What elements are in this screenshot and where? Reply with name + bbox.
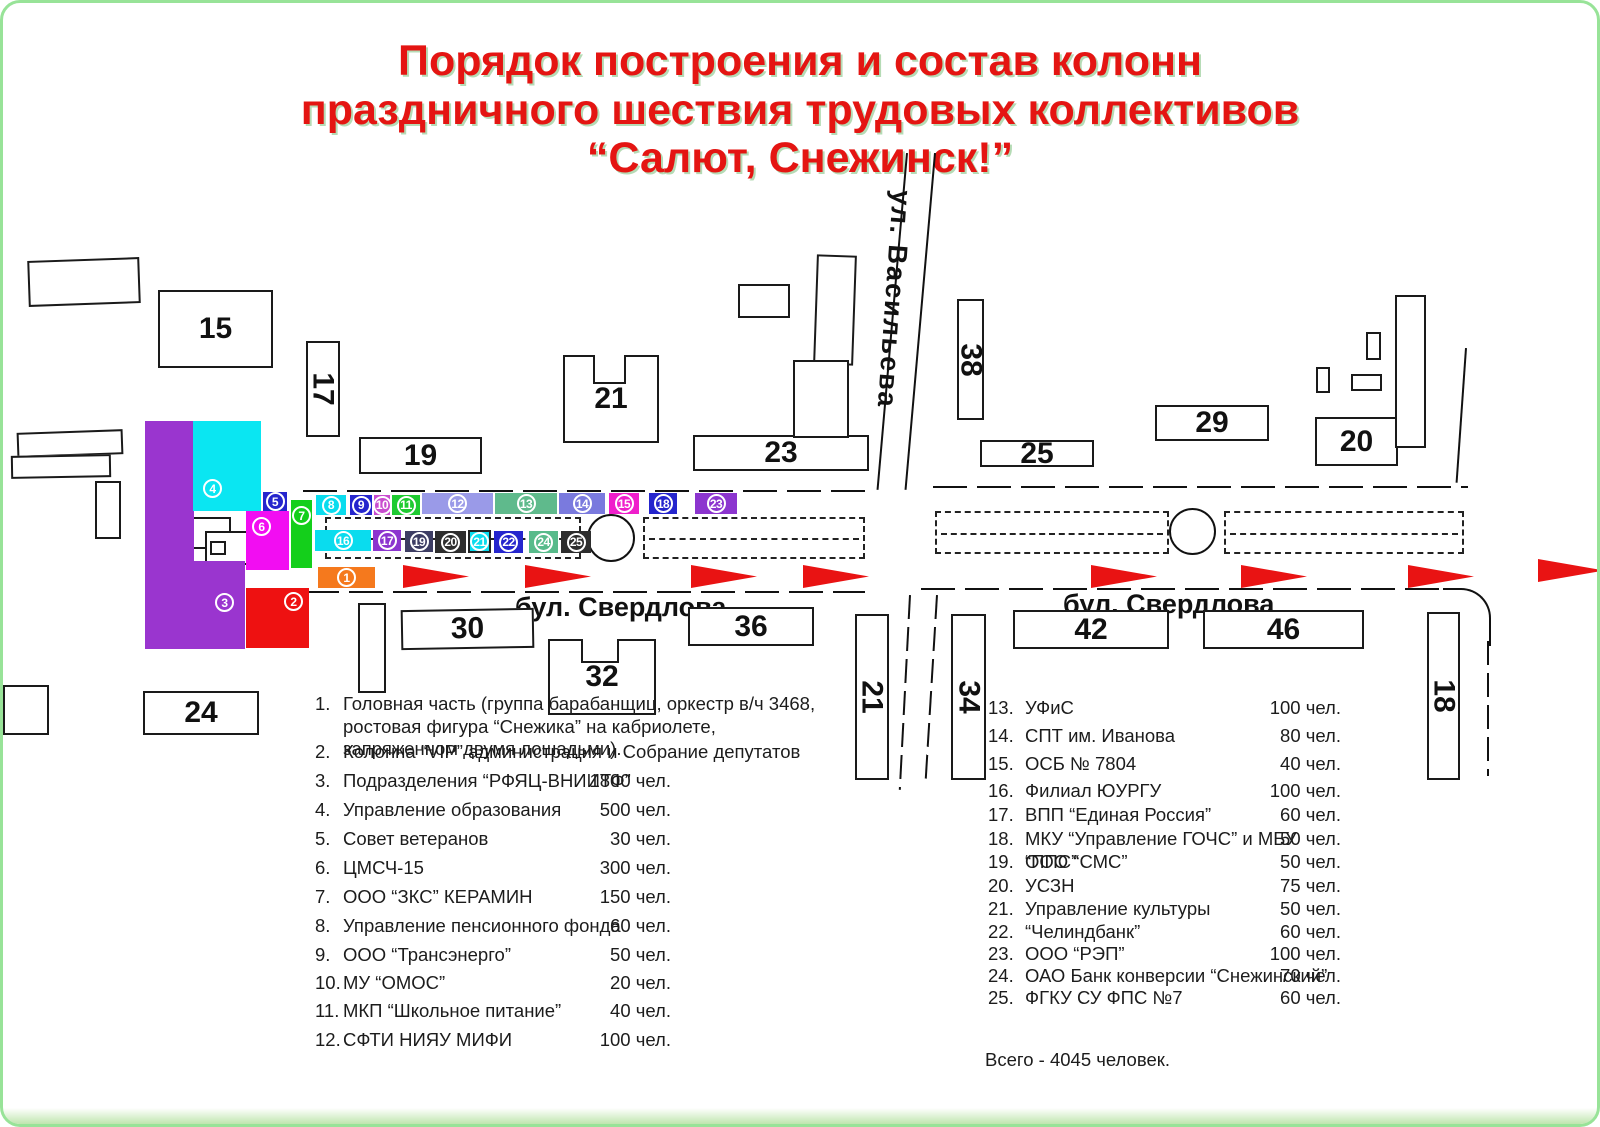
legend-item-number: 17. xyxy=(988,804,1014,827)
legend-item-number: 7. xyxy=(315,886,330,909)
legend-item-number: 22. xyxy=(988,921,1014,944)
building-21: 21 xyxy=(855,614,889,780)
legend-item-count: 500 чел. xyxy=(538,799,671,821)
parade-column-20: 20 xyxy=(435,531,466,553)
building-number: 29 xyxy=(1195,408,1228,438)
legend-item-count: 50 чел. xyxy=(1233,828,1341,850)
parade-column-9: 9 xyxy=(350,495,372,515)
building-18: 18 xyxy=(1427,612,1460,780)
building-outline xyxy=(95,481,121,539)
parade-column-8: 8 xyxy=(316,495,346,515)
parade-column-19: 19 xyxy=(405,531,433,552)
legend-item-count: 50 чел. xyxy=(538,944,671,966)
direction-arrow-icon xyxy=(803,565,869,588)
parade-column-6: 6 xyxy=(246,511,289,570)
parade-column-24: 24 xyxy=(529,531,558,553)
parade-column-22: 22 xyxy=(494,531,523,553)
legend-item-number: 5. xyxy=(315,828,330,851)
building-20: 20 xyxy=(1315,417,1398,466)
column-number: 18 xyxy=(654,494,673,513)
parade-column-5: 5 xyxy=(263,492,287,511)
roundabout-circle xyxy=(1169,508,1216,555)
legend-item-count: 20 чел. xyxy=(538,972,671,994)
building-34: 34 xyxy=(951,614,986,780)
parade-scheme-page: Порядок построения и состав колонн празд… xyxy=(0,0,1600,1127)
legend-item-count: 60 чел. xyxy=(1233,987,1341,1009)
legend-item-count: 1800 чел. xyxy=(538,770,671,792)
legend-item-number: 8. xyxy=(315,915,330,938)
parade-column-12: 12 xyxy=(422,493,493,514)
building-21: 21 xyxy=(563,355,659,443)
legend-item-count: 60 чел. xyxy=(538,915,671,937)
building-outline xyxy=(738,284,790,318)
legend-item-count: 50 чел. xyxy=(1233,851,1341,873)
legend-item-count: 30 чел. xyxy=(538,828,671,850)
legend-item-number: 21. xyxy=(988,898,1014,921)
road-edge xyxy=(1456,348,1467,483)
page-bottom-gradient xyxy=(3,1108,1597,1124)
building-outline xyxy=(1366,332,1381,360)
legend-item-count: 60 чел. xyxy=(1233,804,1341,826)
column-number: 15 xyxy=(615,494,634,513)
column-number: 12 xyxy=(448,494,467,513)
parade-column-1: 1 xyxy=(318,567,375,588)
parade-column-7: 7 xyxy=(291,500,312,568)
column-number: 11 xyxy=(397,496,416,515)
column-number: 22 xyxy=(499,533,518,552)
building-25: 25 xyxy=(980,440,1094,467)
parade-column-25: 25 xyxy=(561,531,591,553)
legend-item-number: 19. xyxy=(988,851,1014,874)
legend-item-number: 23. xyxy=(988,943,1014,966)
direction-arrow-icon xyxy=(1538,559,1600,582)
legend-item-number: 16. xyxy=(988,780,1014,803)
legend-item-count: 50 чел. xyxy=(1233,898,1341,920)
parade-column-21: 21 xyxy=(468,530,491,553)
building-outline xyxy=(27,257,141,307)
legend-item-count: 100 чел. xyxy=(1233,697,1341,719)
building-46: 46 xyxy=(1203,610,1364,649)
column-number: 20 xyxy=(441,533,460,552)
parade-column-17: 17 xyxy=(373,530,401,551)
building-15: 15 xyxy=(158,290,273,368)
direction-arrow-icon xyxy=(1091,565,1157,588)
column-number: 2 xyxy=(284,592,303,611)
building-outline xyxy=(1351,374,1382,391)
street-label-vasilyeva: ул. Васильева xyxy=(871,189,917,410)
building-outline xyxy=(1395,295,1426,448)
building-number: 42 xyxy=(1074,615,1107,645)
building-number: 17 xyxy=(308,372,338,405)
column-number: 10 xyxy=(373,496,392,515)
building-42: 42 xyxy=(1013,610,1169,649)
legend-item-number: 13. xyxy=(988,697,1014,720)
building-24: 24 xyxy=(143,691,259,735)
building-number: 19 xyxy=(404,441,437,471)
column-number: 3 xyxy=(215,593,234,612)
legend-item-count: 80 чел. xyxy=(1233,725,1341,747)
building-38: 38 xyxy=(957,299,984,420)
direction-arrow-icon xyxy=(403,565,469,588)
legend-item-count: 60 чел. xyxy=(1233,921,1341,943)
legend-item-number: 10. xyxy=(315,972,341,995)
legend-item-number: 15. xyxy=(988,753,1014,776)
boulevard-median xyxy=(935,511,1169,554)
page-title: Порядок построения и состав колонн празд… xyxy=(3,37,1597,183)
legend-item-number: 2. xyxy=(315,741,330,764)
sverdlova-road-edge xyxy=(303,490,871,492)
column-number: 13 xyxy=(517,494,536,513)
column-number: 23 xyxy=(707,494,726,513)
building-29: 29 xyxy=(1155,405,1269,441)
column-number: 5 xyxy=(266,492,285,511)
legend-item-count: 40 чел. xyxy=(1233,753,1341,775)
building-19: 19 xyxy=(359,437,482,474)
legend-item-number: 6. xyxy=(315,857,330,880)
legend-item-count: 75 чел. xyxy=(1233,875,1341,897)
building-17: 17 xyxy=(306,341,340,437)
roundabout-circle xyxy=(587,514,635,562)
vasilyeva-road-edge xyxy=(899,595,911,790)
legend-item-number: 9. xyxy=(315,944,330,967)
building-36: 36 xyxy=(688,607,814,646)
parade-column-3 xyxy=(145,421,194,649)
legend-item-count: 70 чел. xyxy=(1233,965,1341,987)
building-number: 21 xyxy=(594,384,627,414)
column-number: 4 xyxy=(203,479,222,498)
building-number: 15 xyxy=(199,314,232,344)
parade-column-11: 11 xyxy=(392,495,420,515)
legend-item-count: 100 чел. xyxy=(1233,780,1341,802)
column-number: 16 xyxy=(334,531,353,550)
building-number: 36 xyxy=(734,612,767,642)
building-outline xyxy=(11,454,111,479)
direction-arrow-icon xyxy=(691,565,757,588)
parade-column-14: 14 xyxy=(559,493,605,514)
column-number: 7 xyxy=(292,506,311,525)
column-number: 9 xyxy=(352,496,371,515)
parade-column-23: 23 xyxy=(695,493,737,514)
building-number: 46 xyxy=(1267,615,1300,645)
legend-item-number: 24. xyxy=(988,965,1014,988)
building-number: 24 xyxy=(184,698,217,728)
legend-item-number: 11. xyxy=(315,1000,339,1023)
legend-item-number: 25. xyxy=(988,987,1014,1010)
legend-item-number: 14. xyxy=(988,725,1014,748)
building-outline xyxy=(358,603,386,693)
building-number: 34 xyxy=(954,680,984,713)
column-number: 17 xyxy=(378,531,397,550)
parade-column-16: 16 xyxy=(315,530,371,551)
boulevard-median xyxy=(1224,511,1464,554)
building-outline xyxy=(813,254,857,365)
column-number: 6 xyxy=(252,517,271,536)
building-outline xyxy=(210,541,226,555)
legend-item-number: 1. xyxy=(315,693,330,716)
column-number: 21 xyxy=(470,532,489,551)
legend-item-count: 300 чел. xyxy=(538,857,671,879)
legend-item-number: 18. xyxy=(988,828,1014,851)
parade-column-2: 2 xyxy=(246,588,309,648)
legend-item-number: 20. xyxy=(988,875,1014,898)
building-number: 21 xyxy=(857,680,887,713)
building-30: 30 xyxy=(401,608,535,650)
building-outline xyxy=(793,360,849,438)
legend-item-number: 3. xyxy=(315,770,330,793)
building-number: 32 xyxy=(585,662,618,692)
legend-item: 2.Колонна “VIP” администрация и Собрание… xyxy=(315,741,820,764)
boulevard-median xyxy=(643,517,865,559)
sverdlova-road-edge xyxy=(933,486,1468,488)
direction-arrow-icon xyxy=(1408,565,1474,588)
building-notch xyxy=(581,639,618,663)
direction-arrow-icon xyxy=(1241,565,1307,588)
building-number: 18 xyxy=(1429,679,1459,712)
column-number: 1 xyxy=(337,568,356,587)
column-number: 25 xyxy=(567,533,586,552)
vasilyeva-road-edge xyxy=(925,595,938,781)
building-number: 23 xyxy=(764,438,797,468)
legend-item-number: 4. xyxy=(315,799,330,822)
column-number: 14 xyxy=(573,494,592,513)
building-outline xyxy=(3,685,49,735)
legend-item-count: 40 чел. xyxy=(538,1000,671,1022)
parade-column-10: 10 xyxy=(374,495,390,515)
parade-column-13: 13 xyxy=(495,493,557,514)
building-outline xyxy=(1316,367,1330,393)
road-edge xyxy=(1487,641,1489,776)
title-line-1: Порядок построения и состав колонн xyxy=(3,37,1597,86)
legend-item-count: 100 чел. xyxy=(1233,943,1341,965)
parade-column-15: 15 xyxy=(609,493,639,514)
building-number: 20 xyxy=(1340,427,1373,457)
building-notch xyxy=(593,355,626,384)
column-number: 19 xyxy=(410,532,429,551)
parade-column-18: 18 xyxy=(649,493,677,514)
parade-column-4: 4 xyxy=(193,421,261,511)
parade-column-3: 3 xyxy=(193,561,245,649)
title-line-3: “Салют, Снежинск!” xyxy=(3,134,1597,183)
building-number: 38 xyxy=(956,343,986,376)
building-number: 25 xyxy=(1020,439,1053,469)
legend-item-name: Колонна “VIP” администрация и Собрание д… xyxy=(343,741,820,764)
legend-item-number: 12. xyxy=(315,1029,341,1052)
building-number: 30 xyxy=(451,614,485,645)
building-23: 23 xyxy=(693,435,869,471)
title-line-2: праздничного шествия трудовых коллективо… xyxy=(3,86,1597,135)
direction-arrow-icon xyxy=(525,565,591,588)
legend-item-count: 150 чел. xyxy=(538,886,671,908)
legend-item-count: 100 чел. xyxy=(538,1029,671,1051)
column-number: 8 xyxy=(322,496,341,515)
column-number: 24 xyxy=(534,533,553,552)
legend-total: Всего - 4045 человек. xyxy=(985,1049,1170,1071)
